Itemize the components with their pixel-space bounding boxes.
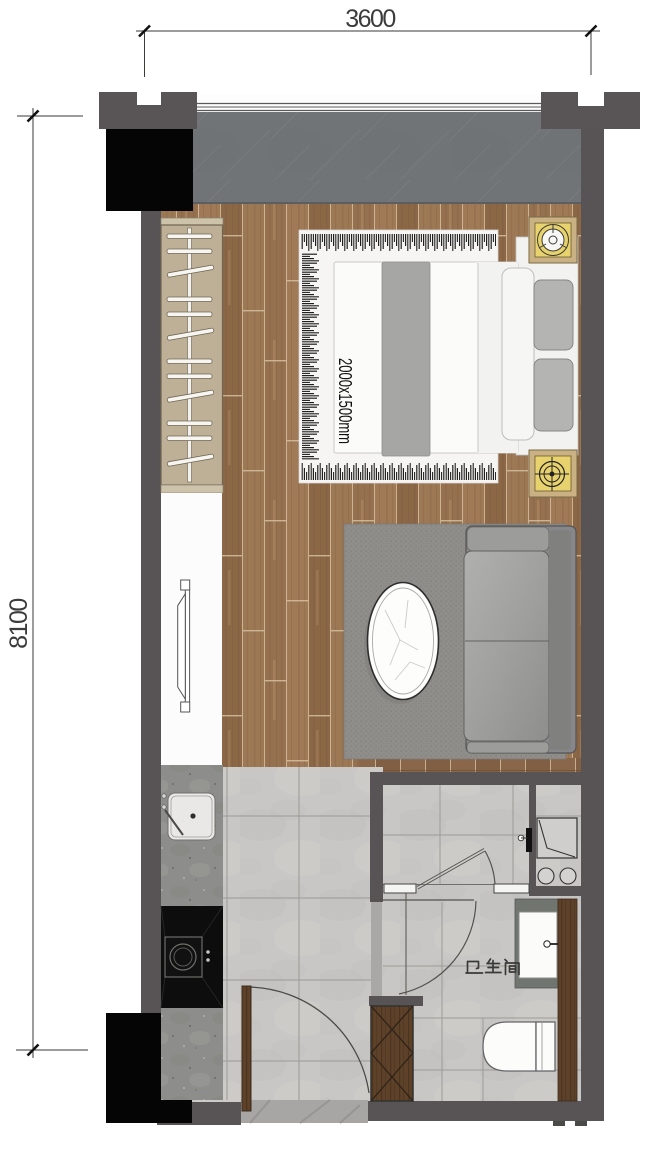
svg-text:3600: 3600 <box>345 5 395 33</box>
svg-text:8100: 8100 <box>5 599 33 649</box>
svg-text:2000x1500mm: 2000x1500mm <box>334 358 355 444</box>
